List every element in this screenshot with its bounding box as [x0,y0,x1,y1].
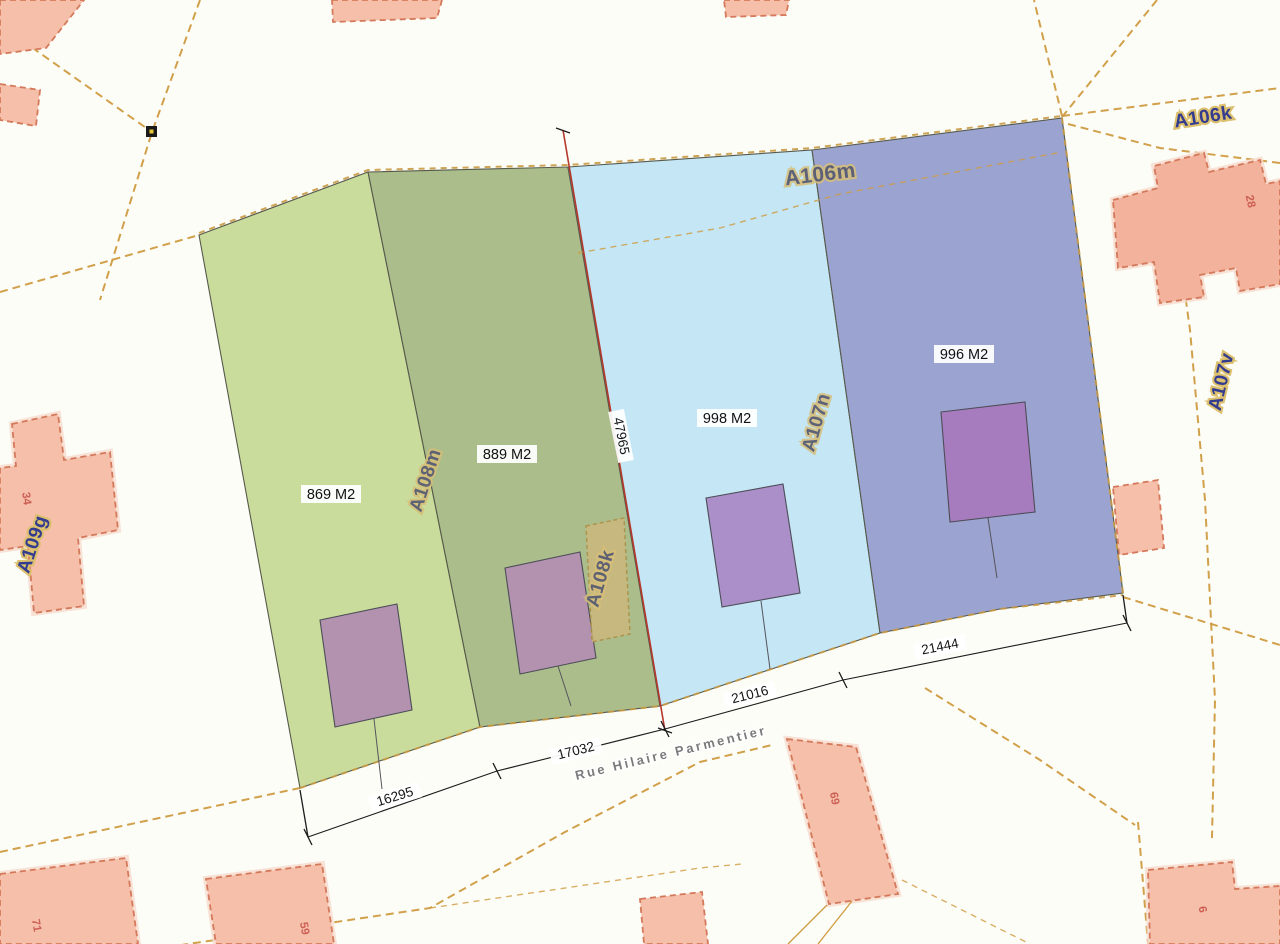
area-label-plot3: 998 M2 [703,411,751,427]
building [0,84,40,126]
survey-marker [146,126,157,137]
building-plot2 [505,552,596,674]
building-plot1 [320,604,412,727]
building [640,892,708,944]
area-label-plot1: 869 M2 [307,487,355,503]
building [332,0,442,22]
area-label-plot2: 889 M2 [483,447,531,463]
building-plot4 [941,402,1035,522]
cadastral-map-stage: 869 M2 889 M2 998 M2 996 M2 16295 17032 … [0,0,1280,944]
area-label-plot4: 996 M2 [940,347,988,363]
house-number-59: 59 [297,921,311,936]
marker-center-icon [150,130,154,134]
building-71 [0,858,138,944]
building [724,0,789,17]
house-number-69: 69 [827,791,841,806]
cadastral-map[interactable]: 869 M2 889 M2 998 M2 996 M2 16295 17032 … [0,0,1280,944]
house-number-34: 34 [19,491,33,506]
building [1113,480,1164,555]
building-plot3 [706,484,800,607]
